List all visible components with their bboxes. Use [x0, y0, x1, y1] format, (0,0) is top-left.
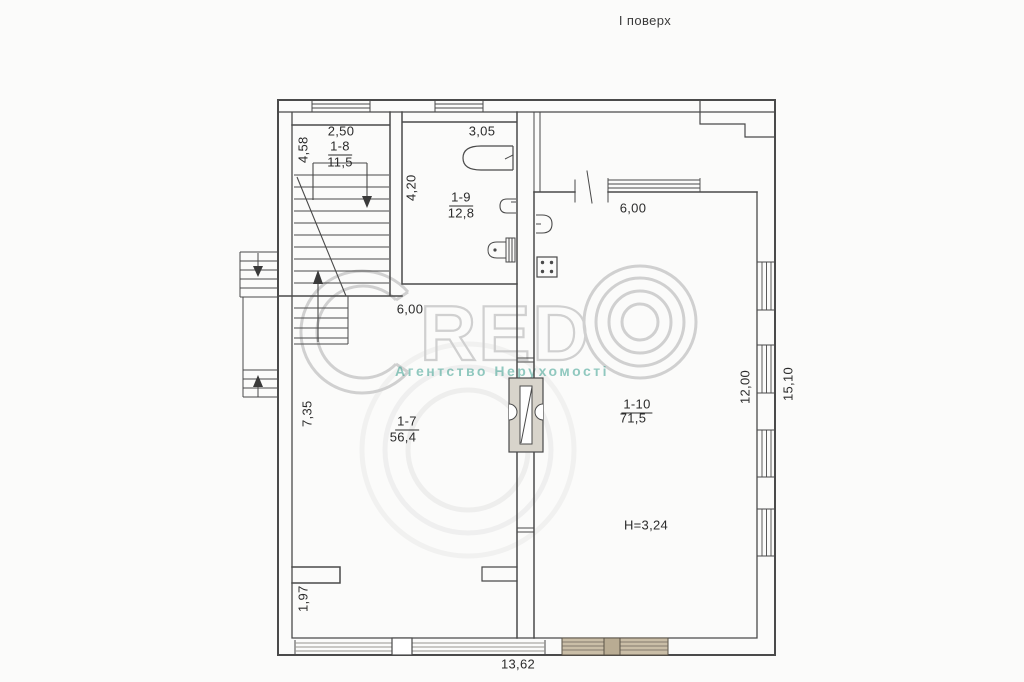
- dim-stair-width: 2,50: [328, 124, 355, 139]
- scanned-floor-plan-page: І поверх RED Агентство Нерухомості: [0, 0, 1024, 682]
- ceiling-height: H=3,24: [624, 518, 668, 533]
- bathtub-icon: [463, 146, 513, 170]
- watermark-copyright-rings-icon: [584, 266, 696, 378]
- dim-room7-width: 6,00: [397, 302, 424, 317]
- terrace-wall: [534, 112, 540, 192]
- top-right-notch: [700, 100, 775, 137]
- room-number-1-8: 1-8: [328, 139, 352, 154]
- watermark-tagline: Агентство Нерухомості: [395, 363, 609, 379]
- stove-icon: [537, 257, 557, 277]
- bottom-window-right: [562, 638, 668, 655]
- staircase: [294, 163, 389, 344]
- flue-block: [509, 378, 543, 452]
- room-area-1-7: 56,4: [390, 430, 417, 445]
- room-area-1-9: 12,8: [448, 206, 475, 221]
- top-window-2: [435, 100, 483, 112]
- right-window-2: [757, 345, 775, 393]
- kitchen-door-jambs: [575, 171, 608, 203]
- exterior-up-arrow-icon: [253, 375, 263, 387]
- stair-up-arrow-icon: [313, 270, 323, 284]
- room-number-1-9: 1-9: [449, 190, 473, 205]
- washbasin-icon: [500, 199, 516, 213]
- dim-room10-width: 6,00: [620, 201, 647, 216]
- stair-break-line: [297, 177, 346, 296]
- stair-down-arrow-icon: [362, 196, 372, 208]
- dim-bath-width: 3,05: [469, 124, 496, 139]
- kitchen-fixtures: [536, 215, 557, 277]
- dim-overall-width: 13,62: [501, 657, 535, 672]
- toilet-icon: [488, 238, 515, 262]
- top-window-1: [312, 100, 370, 112]
- central-wall-notch: [482, 567, 517, 581]
- kitchen-top-window: [608, 178, 700, 192]
- exterior-down-arrow-icon: [253, 266, 263, 277]
- exterior-steps: [240, 252, 278, 397]
- right-window-4: [757, 509, 775, 556]
- right-window-1: [757, 262, 775, 310]
- floor-plan-drawing: RED Агентство Нерухомості: [0, 0, 1024, 682]
- room-number-1-10: 1-10: [621, 397, 652, 412]
- wall-stub: [292, 567, 340, 583]
- bottom-window-left: [295, 638, 545, 655]
- right-window-3: [757, 430, 775, 477]
- kitchen-sink-icon: [536, 215, 552, 233]
- room-area-1-10: 71,5: [620, 411, 647, 426]
- stair-treads: [294, 175, 389, 283]
- room-area-1-8: 11,5: [327, 155, 353, 170]
- room-number-1-7: 1-7: [395, 414, 419, 429]
